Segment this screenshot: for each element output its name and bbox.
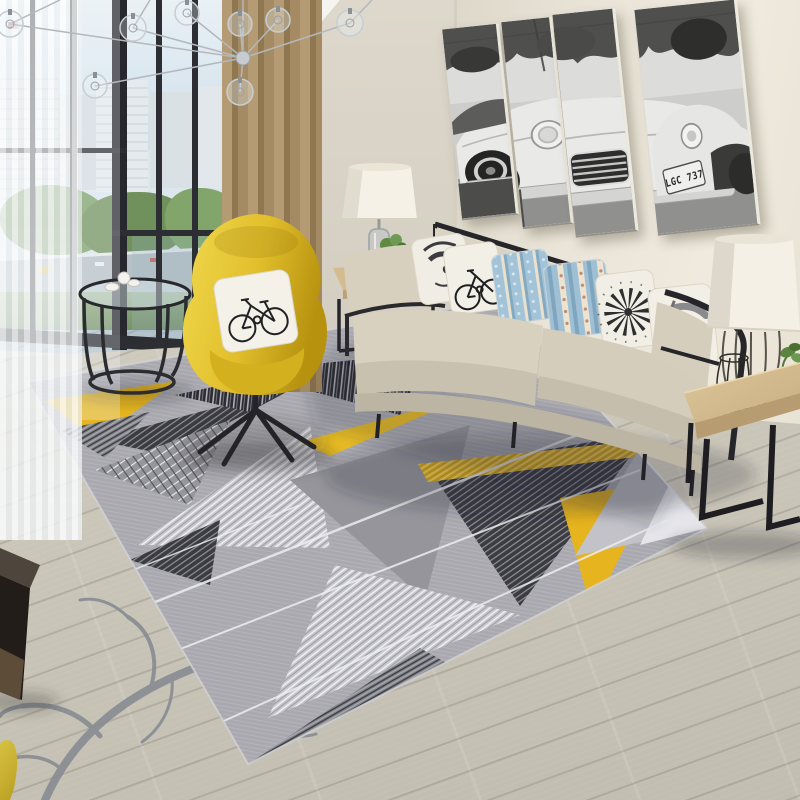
right-lamp-table <box>655 225 800 555</box>
living-room-scene: LGC 737 <box>0 0 800 800</box>
yellow-accent-chair <box>160 200 350 480</box>
glass-globes <box>0 0 363 105</box>
right-table-legs <box>688 423 800 527</box>
chair-legs <box>200 396 314 464</box>
chandelier-hub <box>236 51 250 65</box>
chandelier <box>0 0 460 140</box>
bicycle-pillow <box>213 269 300 354</box>
